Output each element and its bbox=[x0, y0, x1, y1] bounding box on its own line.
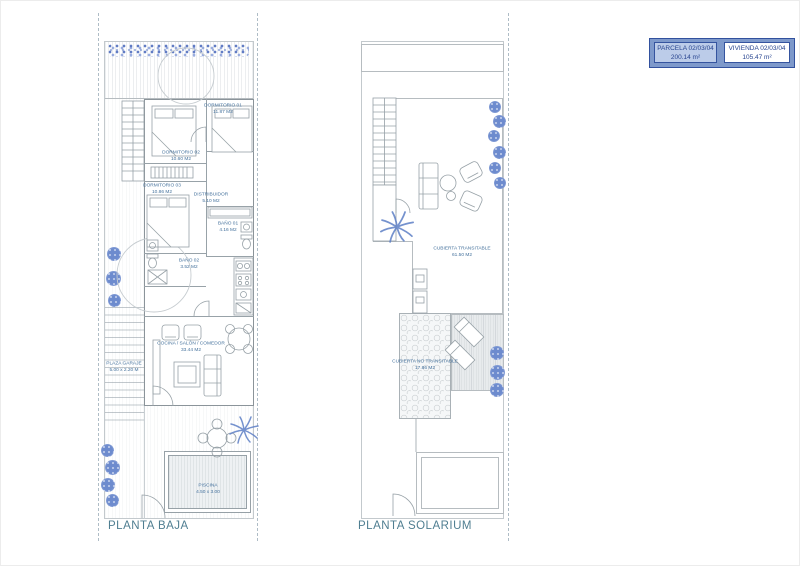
bush-icon bbox=[490, 365, 505, 380]
wall bbox=[144, 253, 206, 254]
shrub-icon bbox=[101, 444, 114, 457]
wall bbox=[206, 99, 207, 256]
climber-plant-icon bbox=[489, 101, 501, 113]
wall bbox=[144, 286, 206, 287]
lower-pool-inner bbox=[421, 457, 499, 509]
bush-icon bbox=[108, 294, 121, 307]
wall bbox=[206, 206, 254, 207]
room-area: 61.50 M2 bbox=[433, 252, 490, 258]
bush-icon bbox=[490, 383, 504, 397]
room-area: 4.16 M2 bbox=[218, 227, 238, 233]
floorplan-sheet: DORMITORIO 01 11.87 M2 DORMITORIO 02 10.… bbox=[0, 0, 800, 566]
room-label-dormitorio-01: DORMITORIO 01 11.87 M2 bbox=[204, 103, 242, 116]
legend-vivienda-area: 105.47 m² bbox=[725, 53, 789, 62]
room-area: 5.00 x 2.20 M bbox=[106, 367, 141, 373]
room-area: 4.50 x 3.00 bbox=[196, 489, 220, 495]
legend-box: PARCELA 02/03/04 200.14 m² VIVIENDA 02/0… bbox=[649, 38, 795, 68]
boundary-dashed-left bbox=[98, 13, 99, 541]
boundary-dashed-left-plan-right bbox=[257, 13, 258, 541]
bush-icon bbox=[106, 271, 121, 286]
room-area: 33.44 M2 bbox=[157, 347, 225, 353]
legend-vivienda-cell: VIVIENDA 02/03/04 105.47 m² bbox=[724, 42, 790, 63]
legend-parcela-area: 200.14 m² bbox=[655, 53, 716, 62]
plan-title-planta-solarium: PLANTA SOLARIUM bbox=[358, 520, 472, 532]
room-label-distribuidor: DISTRIBUIDOR 5.10 M2 bbox=[194, 192, 228, 205]
room-label-bano-02: BAÑO 02 3.52 M2 bbox=[179, 258, 199, 271]
legend-parcela-cell: PARCELA 02/03/04 200.14 m² bbox=[654, 42, 717, 63]
room-label-cubierta-transitable: CUBIERTA TRANSITABLE 61.50 M2 bbox=[433, 246, 490, 259]
solarium-front-band bbox=[361, 44, 504, 72]
room-label-plaza-garaje: PLAZA GARAJE 5.00 x 2.20 M bbox=[106, 361, 141, 374]
boundary-dashed-right bbox=[508, 13, 509, 541]
room-label-cocina-salon: COCINA / SALÓN / COMEDOR 33.44 M2 bbox=[157, 341, 225, 354]
room-area: 10.86 M2 bbox=[143, 189, 181, 195]
shrub-icon bbox=[101, 478, 115, 492]
climber-plant-icon bbox=[489, 162, 501, 174]
room-area: 5.10 M2 bbox=[194, 198, 228, 204]
room-label-dormitorio-03: DORMITORIO 03 10.86 M2 bbox=[143, 183, 181, 196]
room-area: 11.87 M2 bbox=[204, 109, 242, 115]
wall bbox=[206, 151, 254, 152]
climber-plant-icon bbox=[488, 130, 500, 142]
room-label-cubierta-no-transitable: CUBIERTA NO TRANSITABLE 17.86 M2 bbox=[392, 359, 458, 372]
wall bbox=[206, 256, 254, 257]
climber-plant-icon bbox=[493, 146, 506, 159]
room-area: 10.60 M2 bbox=[162, 156, 200, 162]
room-label-piscina: PISCINA 4.50 x 3.00 bbox=[196, 483, 220, 496]
bush-icon bbox=[490, 346, 504, 360]
room-label-dormitorio-02: DORMITORIO 02 10.60 M2 bbox=[162, 150, 200, 163]
shrub-icon bbox=[105, 460, 120, 475]
legend-vivienda-label: VIVIENDA 02/03/04 bbox=[725, 44, 789, 53]
room-area: 3.52 M2 bbox=[179, 264, 199, 270]
deck-cutout bbox=[373, 241, 413, 314]
bush-icon bbox=[107, 247, 121, 261]
wall bbox=[144, 163, 206, 164]
climber-plant-icon bbox=[494, 177, 506, 189]
flower-bed-icon bbox=[108, 44, 249, 57]
climber-plant-icon bbox=[493, 115, 506, 128]
room-area: 17.86 M2 bbox=[392, 365, 458, 371]
room-label-bano-01: BAÑO 01 4.16 M2 bbox=[218, 221, 238, 234]
wall bbox=[144, 316, 254, 317]
legend-parcela-label: PARCELA 02/03/04 bbox=[655, 44, 716, 53]
shrub-icon bbox=[106, 494, 119, 507]
plan-title-planta-baja: PLANTA BAJA bbox=[108, 520, 189, 532]
